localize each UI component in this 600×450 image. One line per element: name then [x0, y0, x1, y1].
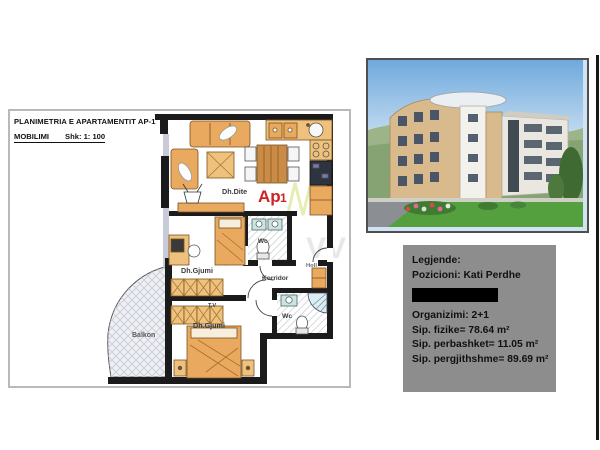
page: PLANIMETRIA E APARTAMENTIT AP-1 MOBILIMI… [0, 0, 600, 450]
label-tv: T.V [208, 303, 216, 309]
right-border-line [596, 55, 599, 440]
hall-cabinet [312, 268, 326, 288]
label-bedroom2: Dh.Gjumi [193, 321, 225, 330]
legend-area-total: Sip. pergjithshme= 89.69 m² [412, 353, 550, 368]
label-apartment-num: 1 [280, 191, 287, 205]
bedroom2-furniture [171, 306, 254, 378]
legend-title: Legjende: [412, 254, 550, 269]
flower-bed [404, 201, 456, 215]
bedroom1-furniture [169, 217, 245, 296]
label-hall: Holl [306, 263, 317, 269]
label-wc1: Wc [258, 238, 268, 245]
legend-area-physical: Sip. fizike= 78.64 m² [412, 324, 550, 339]
legend-position: Pozicioni: Kati Perdhe [412, 269, 550, 284]
legend-panel: Legjende: Pozicioni: Kati Perdhe Organiz… [403, 245, 556, 392]
label-balcony: Balkon [132, 332, 155, 339]
label-apartment: Ap [258, 187, 281, 206]
building-photo-frame [366, 58, 589, 233]
legend-organization: Organizimi: 2+1 [412, 309, 550, 324]
legend-area-shared: Sip. perbashket= 11.05 m² [412, 338, 550, 353]
balcony-area [108, 266, 169, 377]
label-wc2: Wc [282, 313, 292, 320]
redacted-bar [412, 288, 498, 302]
label-bedroom1: Dh.Gjumi [181, 266, 213, 275]
building-rendering [368, 60, 583, 227]
label-living: Dh.Dite [222, 187, 247, 196]
label-corridor: Korridor [262, 275, 289, 282]
